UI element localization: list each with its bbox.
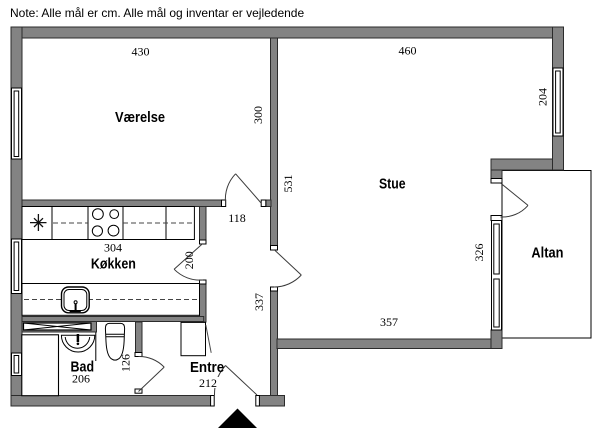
svg-text:Værelse: Værelse [115, 110, 165, 126]
svg-text:300: 300 [251, 106, 265, 124]
svg-text:460: 460 [399, 44, 417, 58]
svg-text:357: 357 [380, 315, 398, 329]
svg-text:304: 304 [104, 241, 122, 255]
svg-text:204: 204 [536, 88, 550, 106]
svg-text:Entre: Entre [190, 360, 224, 376]
svg-text:Køkken: Køkken [91, 256, 136, 272]
svg-text:118: 118 [228, 211, 246, 225]
svg-text:531: 531 [281, 175, 295, 193]
svg-text:Altan: Altan [531, 246, 563, 262]
svg-text:212: 212 [199, 376, 217, 390]
svg-text:Stue: Stue [379, 176, 406, 192]
svg-text:326: 326 [472, 244, 486, 262]
svg-text:126: 126 [119, 354, 133, 372]
svg-text:430: 430 [132, 45, 150, 59]
svg-text:200: 200 [182, 251, 196, 269]
svg-text:206: 206 [72, 372, 90, 386]
svg-text:337: 337 [252, 293, 266, 311]
svg-text:Note: Alle mål er cm. Alle mål: Note: Alle mål er cm. Alle mål og invent… [10, 6, 304, 20]
